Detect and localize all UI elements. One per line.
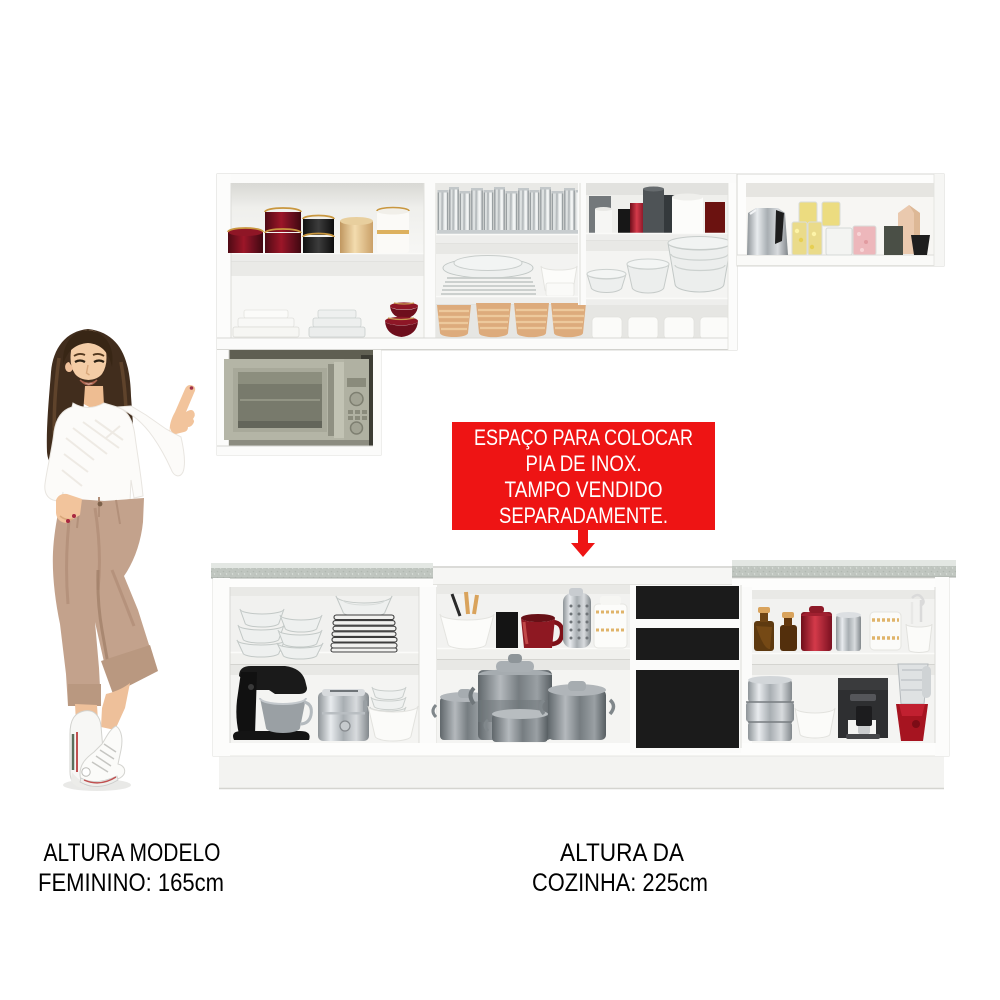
svg-text:FEMININO: 165cm: FEMININO: 165cm	[38, 869, 224, 897]
svg-text:COZINHA: 225cm: COZINHA: 225cm	[532, 869, 708, 897]
svg-text:ALTURA DA: ALTURA DA	[560, 839, 684, 867]
svg-text:ESPAÇO PARA COLOCAR: ESPAÇO PARA COLOCAR	[474, 425, 693, 450]
svg-text:PIA DE INOX.: PIA DE INOX.	[526, 451, 642, 476]
svg-text:ALTURA MODELO: ALTURA MODELO	[44, 839, 221, 867]
svg-text:TAMPO VENDIDO: TAMPO VENDIDO	[505, 477, 663, 502]
svg-text:SEPARADAMENTE.: SEPARADAMENTE.	[499, 503, 668, 528]
